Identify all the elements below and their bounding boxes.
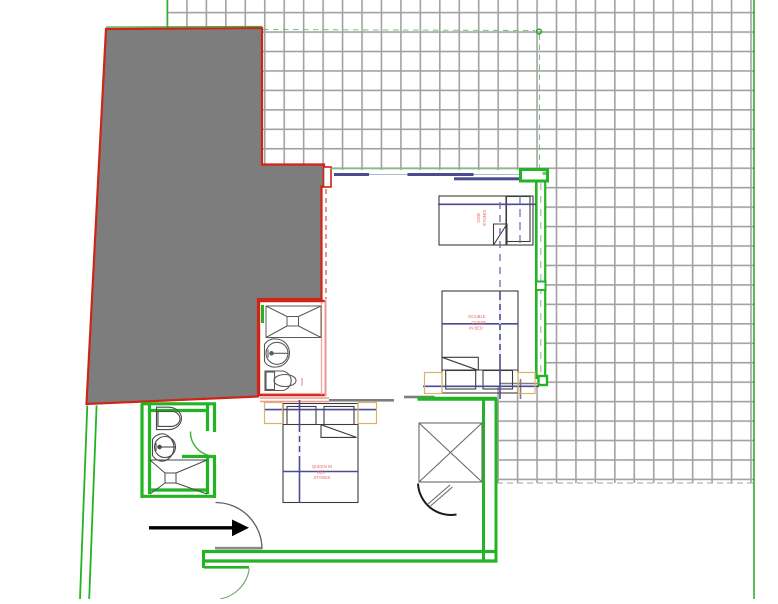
svg-text:BED: BED — [317, 470, 326, 475]
svg-text:QUEEN IN: QUEEN IN — [312, 464, 332, 469]
svg-text:QUEEN: QUEEN — [472, 320, 487, 325]
svg-text:STANDS: STANDS — [314, 475, 331, 480]
svg-text:SINGLE: SINGLE — [482, 210, 487, 227]
svg-text:DOUBLE: DOUBLE — [468, 314, 485, 319]
svg-text:IN BED: IN BED — [469, 326, 483, 331]
svg-text:BED: BED — [476, 213, 481, 223]
